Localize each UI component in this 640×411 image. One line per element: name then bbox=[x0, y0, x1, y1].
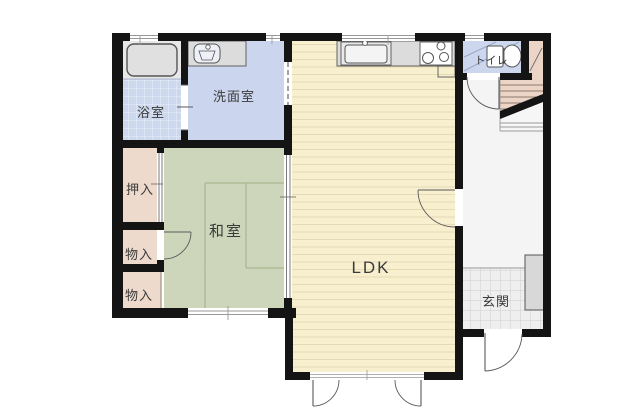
storage-lower-label: 物入 bbox=[125, 288, 153, 303]
bathtub-icon bbox=[127, 44, 177, 76]
kitchen-sink-icon bbox=[341, 41, 391, 65]
toilet-window bbox=[465, 33, 484, 41]
shoe-cabinet-icon bbox=[525, 255, 544, 310]
tatami-window bbox=[188, 306, 268, 320]
washroom-door bbox=[284, 62, 292, 105]
tatami-room-label: 和室 bbox=[209, 223, 243, 240]
ldk-plank-pattern bbox=[292, 41, 455, 372]
bathroom-label: 浴室 bbox=[137, 105, 165, 120]
toilet-label: トイレ bbox=[475, 55, 508, 67]
ldk-label: LDK bbox=[351, 258, 390, 277]
stove-icon bbox=[420, 42, 452, 65]
entrance-label: 玄関 bbox=[482, 294, 510, 309]
vanity-sink-icon bbox=[188, 41, 246, 66]
storage-upper-label: 物入 bbox=[125, 247, 153, 262]
washroom-label: 洗面室 bbox=[213, 89, 255, 104]
closet-label: 押入 bbox=[126, 182, 154, 197]
floor-plan-canvas: 浴室 洗面室 トイレ 押入 和室 物入 物入 LDK 玄関 bbox=[0, 0, 640, 411]
floor-plan: 浴室 洗面室 トイレ 押入 和室 物入 物入 LDK 玄関 bbox=[0, 0, 640, 411]
